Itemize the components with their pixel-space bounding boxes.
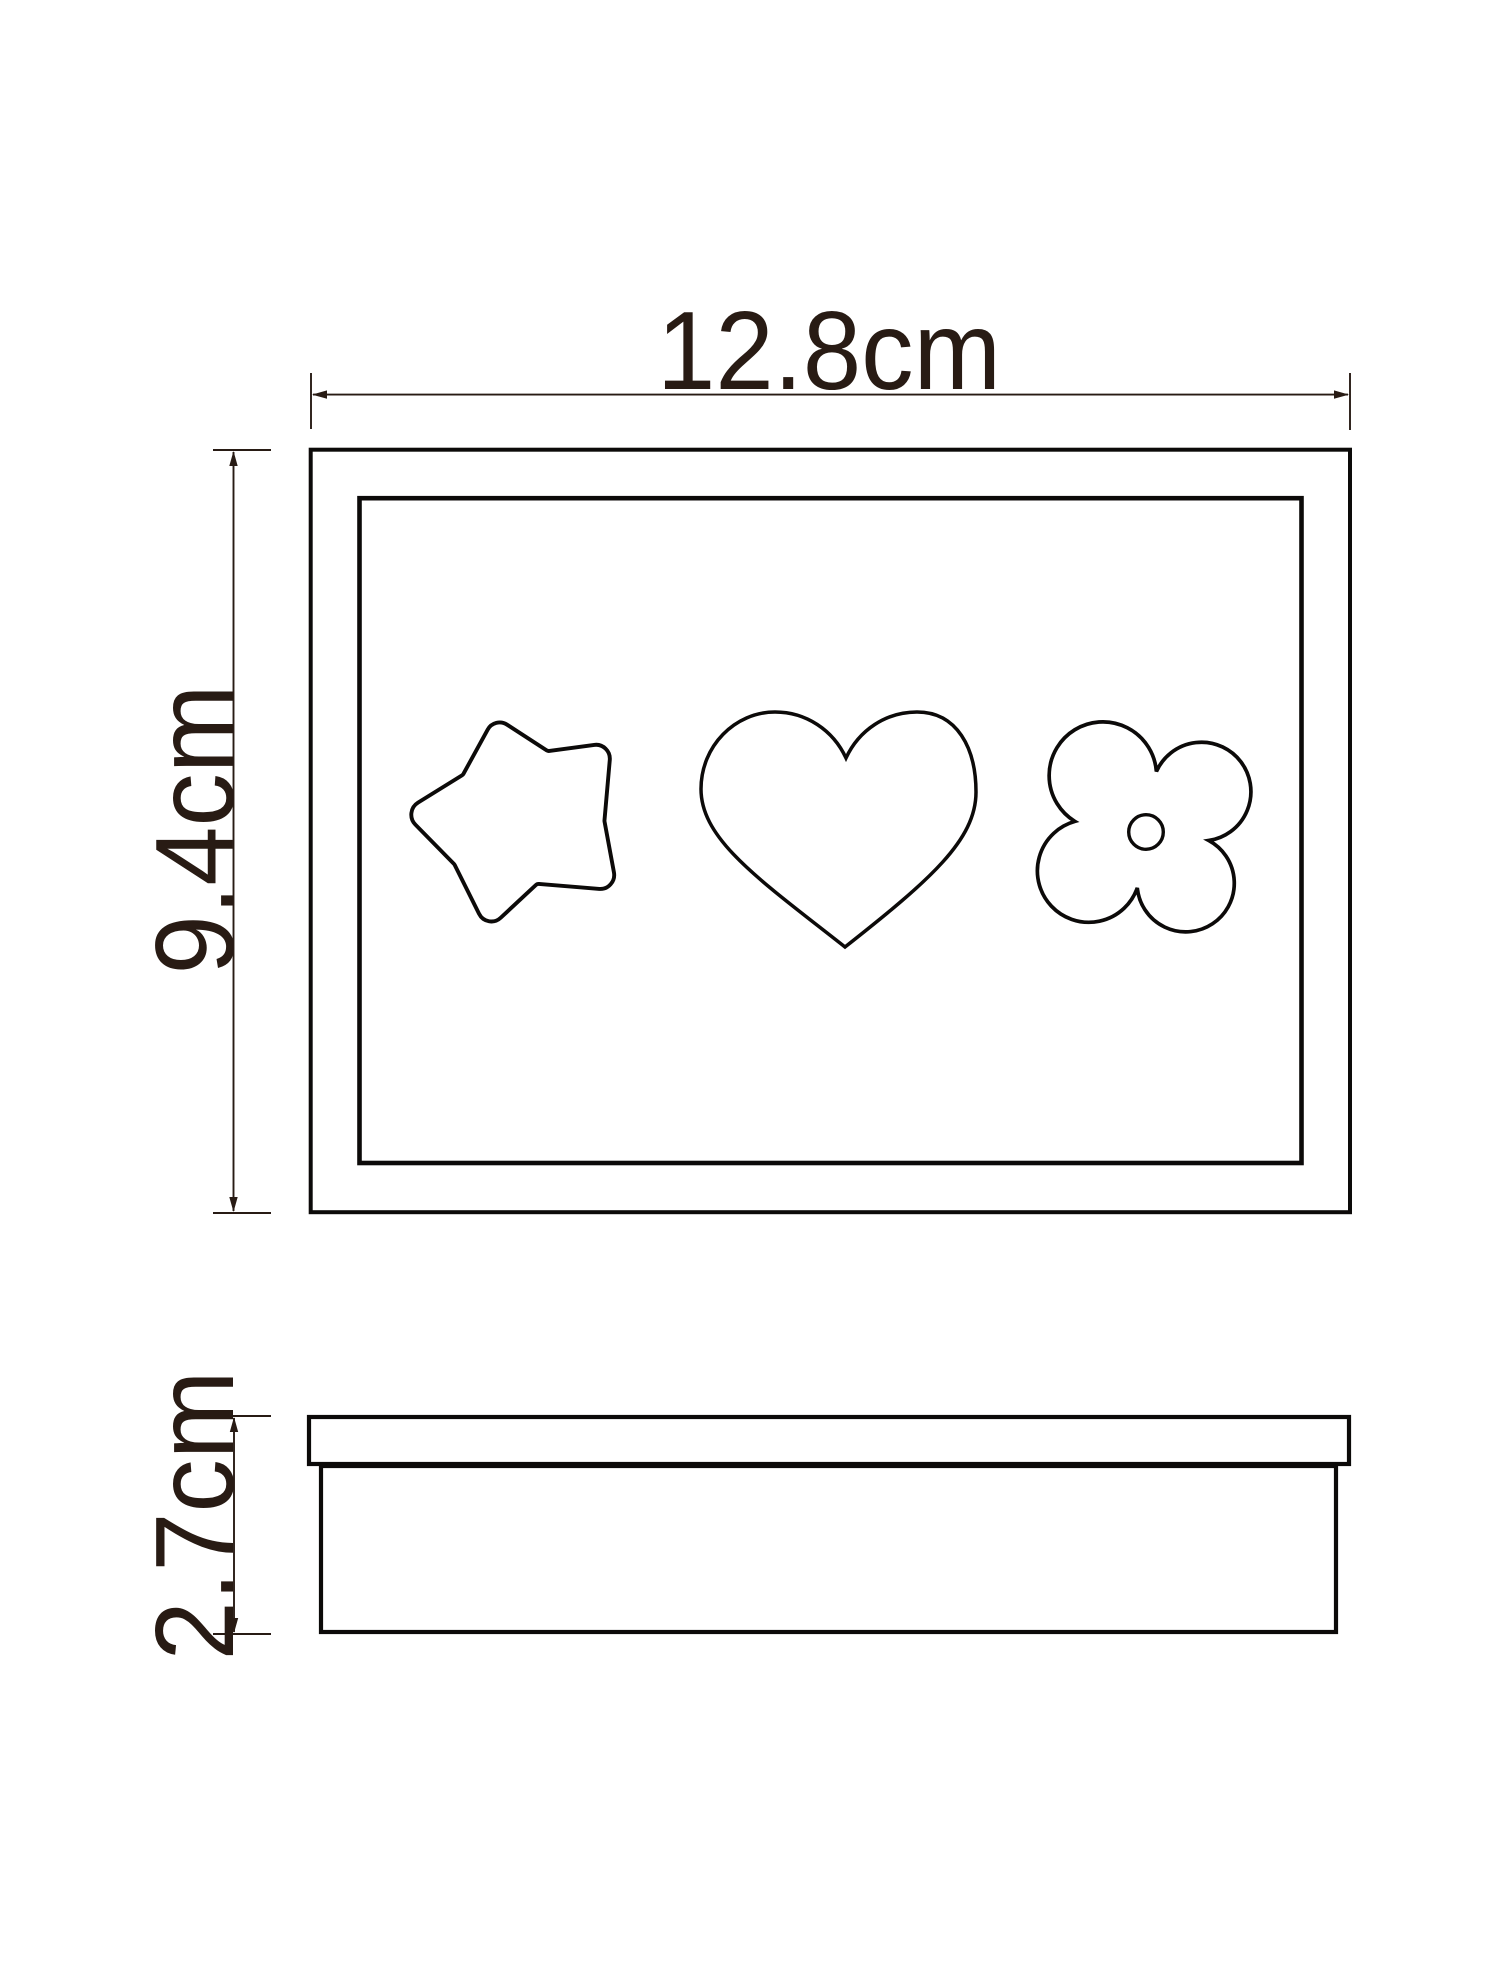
svg-text:9.4cm: 9.4cm <box>133 685 257 975</box>
svg-text:2.7cm: 2.7cm <box>133 1371 257 1661</box>
